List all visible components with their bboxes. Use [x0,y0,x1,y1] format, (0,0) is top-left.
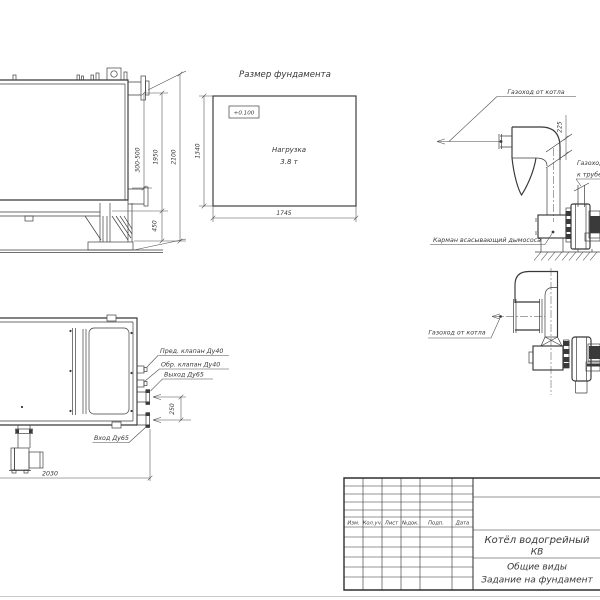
smoke-exhauster-fan-plan [563,337,600,393]
label-check-valve: Обр. клапан Ду40 [161,361,220,369]
foundation-title: Размер фундамента [239,70,331,80]
sheet-name-line1: Общие виды [507,563,567,573]
col-data: Дата [455,521,469,527]
dim-250: 250 [169,403,176,415]
gas-duct-elevation: Газоход от котла 225 [430,89,600,261]
burner-assembly [9,425,43,473]
label-suction-pocket: Карман всасывающий дымососа [433,237,541,244]
doc-name-line1: Котёл водогрейный [485,535,590,546]
col-list: Лист [384,521,399,527]
boiler-plan-view: Пред. клапан Ду40 Обр. клапан Ду40 Выход… [0,315,229,481]
dim-225: 225 [557,121,564,133]
dim-1340: 1340 [195,143,202,158]
label-gas-duct-to-chimney-1: Газоход [577,160,600,167]
ground-hatching [534,252,600,261]
doc-name-line2: КВ [531,548,544,558]
nozzles-and-valves [137,366,150,428]
load-value: 3.8 т [280,158,298,166]
dimensions-side-view: 300-500 1950 2100 450 [112,71,186,250]
dim-stub-range: 300-500 [135,147,142,172]
foundation-view: Размер фундамента +0.100 Нагрузка 3.8 т … [195,70,359,222]
sheet-name-line2: Задание на фундамент [481,576,593,586]
support-frame [0,200,163,253]
dimension-250: 250 [153,394,191,422]
label-gas-duct-to-chimney-2: к трубе [577,171,600,179]
col-podp: Подп. [428,521,444,527]
dimension-2030: 2030 [0,429,152,481]
title-block: Изм. Кол.уч. Лист №док. Подп. Дата Котёл… [344,478,600,590]
boiler-side-view: 300-500 1950 2100 450 [0,68,186,253]
col-ndok: №док. [401,521,419,527]
label-inlet: Вход Ду65 [94,435,129,442]
col-izm: Изм. [347,521,359,527]
dimensions-foundation: 1340 1745 [195,94,359,222]
dim-1745: 1745 [276,210,291,217]
label-outlet: Выход Ду65 [164,372,204,379]
smoke-exhauster-fan [566,204,600,252]
dim-2030: 2030 [42,471,58,478]
label-gas-duct-from-boiler-plan: Газоход от котла [428,330,485,337]
dim-2100: 2100 [171,149,178,164]
technical-drawing: 300-500 1950 2100 450 Размер фундамента … [0,0,600,600]
level-mark: +0.100 [234,111,255,117]
gas-duct-plan: Газоход от котла [428,268,600,395]
label-safety-valve: Пред. клапан Ду40 [160,348,223,355]
cyclone [512,127,560,195]
label-gas-duct-from-boiler: Газоход от котла [507,89,564,96]
load-label: Нагрузка [272,146,306,154]
col-koluch: Кол.уч. [363,521,383,527]
dim-450: 450 [152,220,159,232]
dim-1950: 1950 [153,149,160,164]
